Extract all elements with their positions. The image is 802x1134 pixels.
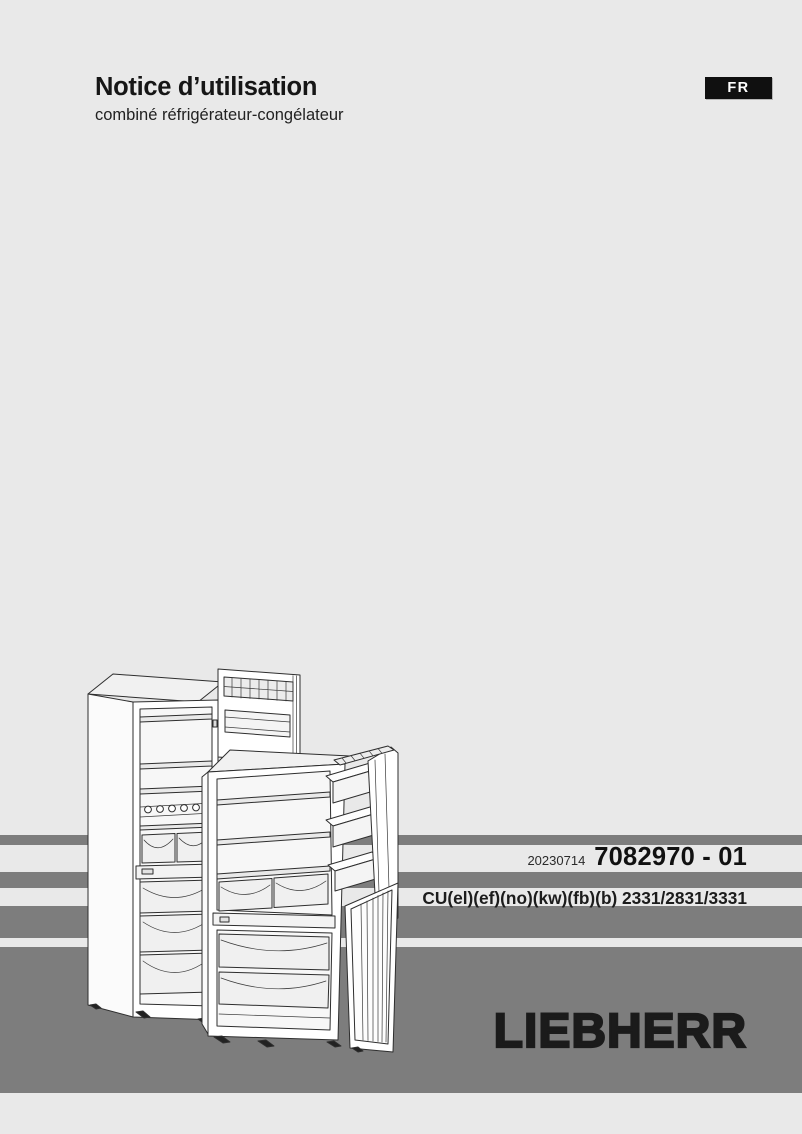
- page-title: Notice d’utilisation: [95, 72, 344, 102]
- fridge-freezer-illustration: [80, 660, 400, 1060]
- document-number: 7082970 - 01: [594, 843, 747, 872]
- manual-cover-page: Notice d’utilisation combiné réfrigérate…: [0, 0, 802, 1134]
- language-badge-label: FR: [727, 80, 749, 96]
- page-subtitle: combiné réfrigérateur-congélateur: [95, 105, 344, 126]
- date-code: 20230714: [527, 853, 585, 868]
- model-codes: CU(el)(ef)(no)(kw)(fb)(b) 2331/2831/3331: [422, 888, 747, 909]
- header: Notice d’utilisation combiné réfrigérate…: [95, 72, 344, 126]
- liebherr-logo: LIEBHERR: [494, 1006, 747, 1058]
- language-badge: FR: [705, 77, 772, 99]
- publication-info: 20230714 7082970 - 01: [527, 843, 747, 871]
